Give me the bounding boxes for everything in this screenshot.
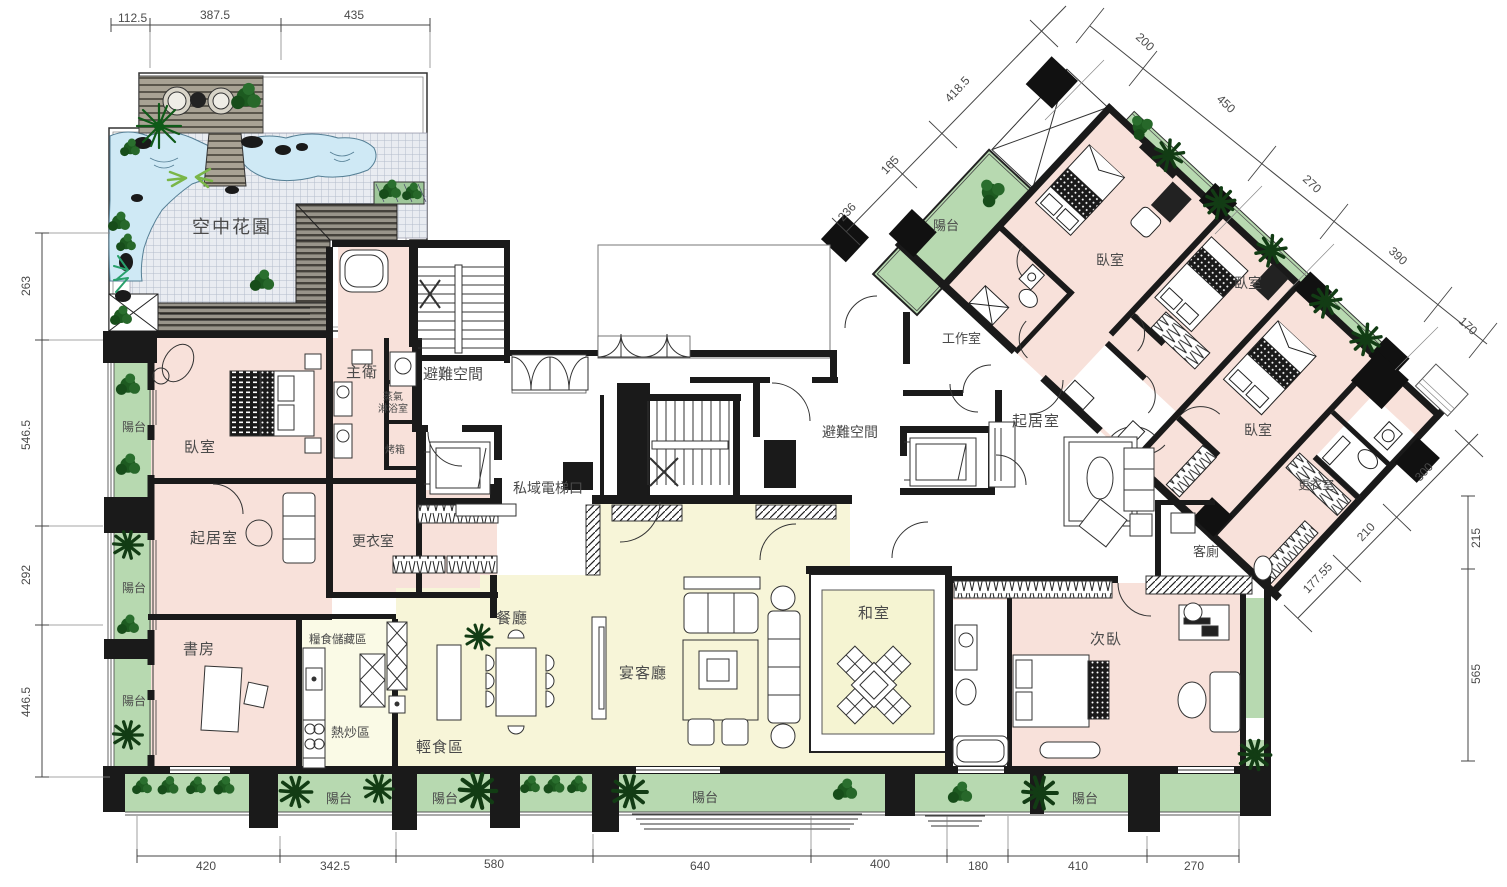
svg-text:陽台: 陽台 — [122, 419, 146, 434]
svg-text:640: 640 — [690, 859, 710, 873]
svg-text:陽台: 陽台 — [122, 580, 146, 595]
svg-text:陽台: 陽台 — [122, 693, 146, 708]
svg-text:烤箱: 烤箱 — [385, 443, 405, 456]
svg-text:避難空間: 避難空間 — [423, 366, 483, 383]
svg-text:565: 565 — [1469, 664, 1483, 684]
svg-text:263: 263 — [19, 276, 33, 296]
svg-text:342.5: 342.5 — [320, 859, 350, 873]
svg-text:主衛: 主衛 — [346, 364, 378, 381]
svg-text:臥室: 臥室 — [184, 439, 216, 456]
svg-text:臥室: 臥室 — [1244, 422, 1272, 438]
svg-text:宴客廳: 宴客廳 — [619, 664, 667, 682]
svg-text:淋浴室: 淋浴室 — [378, 402, 408, 415]
svg-text:起居室: 起居室 — [190, 530, 238, 547]
svg-text:空中花園: 空中花園 — [192, 217, 272, 237]
svg-text:陽台: 陽台 — [326, 791, 352, 806]
svg-text:292: 292 — [19, 565, 33, 585]
svg-text:工作室: 工作室 — [942, 331, 981, 346]
svg-text:糧食儲藏區: 糧食儲藏區 — [309, 632, 367, 646]
svg-text:400: 400 — [870, 857, 890, 871]
svg-text:臥室: 臥室 — [1096, 252, 1124, 268]
svg-text:陽台: 陽台 — [933, 218, 959, 233]
svg-text:臥室: 臥室 — [1234, 275, 1262, 291]
svg-text:580: 580 — [484, 857, 504, 871]
svg-text:446.5: 446.5 — [19, 687, 33, 717]
svg-text:更衣室: 更衣室 — [352, 533, 394, 549]
svg-text:387.5: 387.5 — [200, 8, 230, 22]
svg-text:熱炒區: 熱炒區 — [331, 725, 370, 740]
svg-text:起居室: 起居室 — [1012, 413, 1060, 430]
svg-text:410: 410 — [1068, 859, 1088, 873]
svg-text:和室: 和室 — [858, 605, 890, 622]
svg-text:蒸氣: 蒸氣 — [383, 390, 403, 403]
svg-text:112.5: 112.5 — [118, 11, 147, 25]
svg-text:私域電梯口: 私域電梯口 — [513, 480, 583, 496]
svg-text:客廁: 客廁 — [1193, 544, 1219, 559]
svg-text:215: 215 — [1469, 528, 1483, 548]
svg-text:次臥: 次臥 — [1090, 631, 1122, 648]
svg-text:陽台: 陽台 — [432, 791, 458, 806]
svg-text:輕食區: 輕食區 — [416, 739, 464, 756]
svg-text:陽台: 陽台 — [692, 790, 718, 805]
svg-text:180: 180 — [968, 859, 988, 873]
svg-text:270: 270 — [1184, 859, 1204, 873]
svg-text:435: 435 — [344, 8, 364, 22]
svg-text:546.5: 546.5 — [19, 420, 33, 450]
svg-text:陽台: 陽台 — [1072, 791, 1098, 806]
svg-text:書房: 書房 — [183, 641, 215, 658]
svg-text:避難空間: 避難空間 — [822, 424, 878, 440]
svg-text:420: 420 — [196, 859, 216, 873]
svg-text:更衣室: 更衣室 — [1298, 477, 1334, 492]
svg-text:餐廳: 餐廳 — [496, 609, 528, 627]
